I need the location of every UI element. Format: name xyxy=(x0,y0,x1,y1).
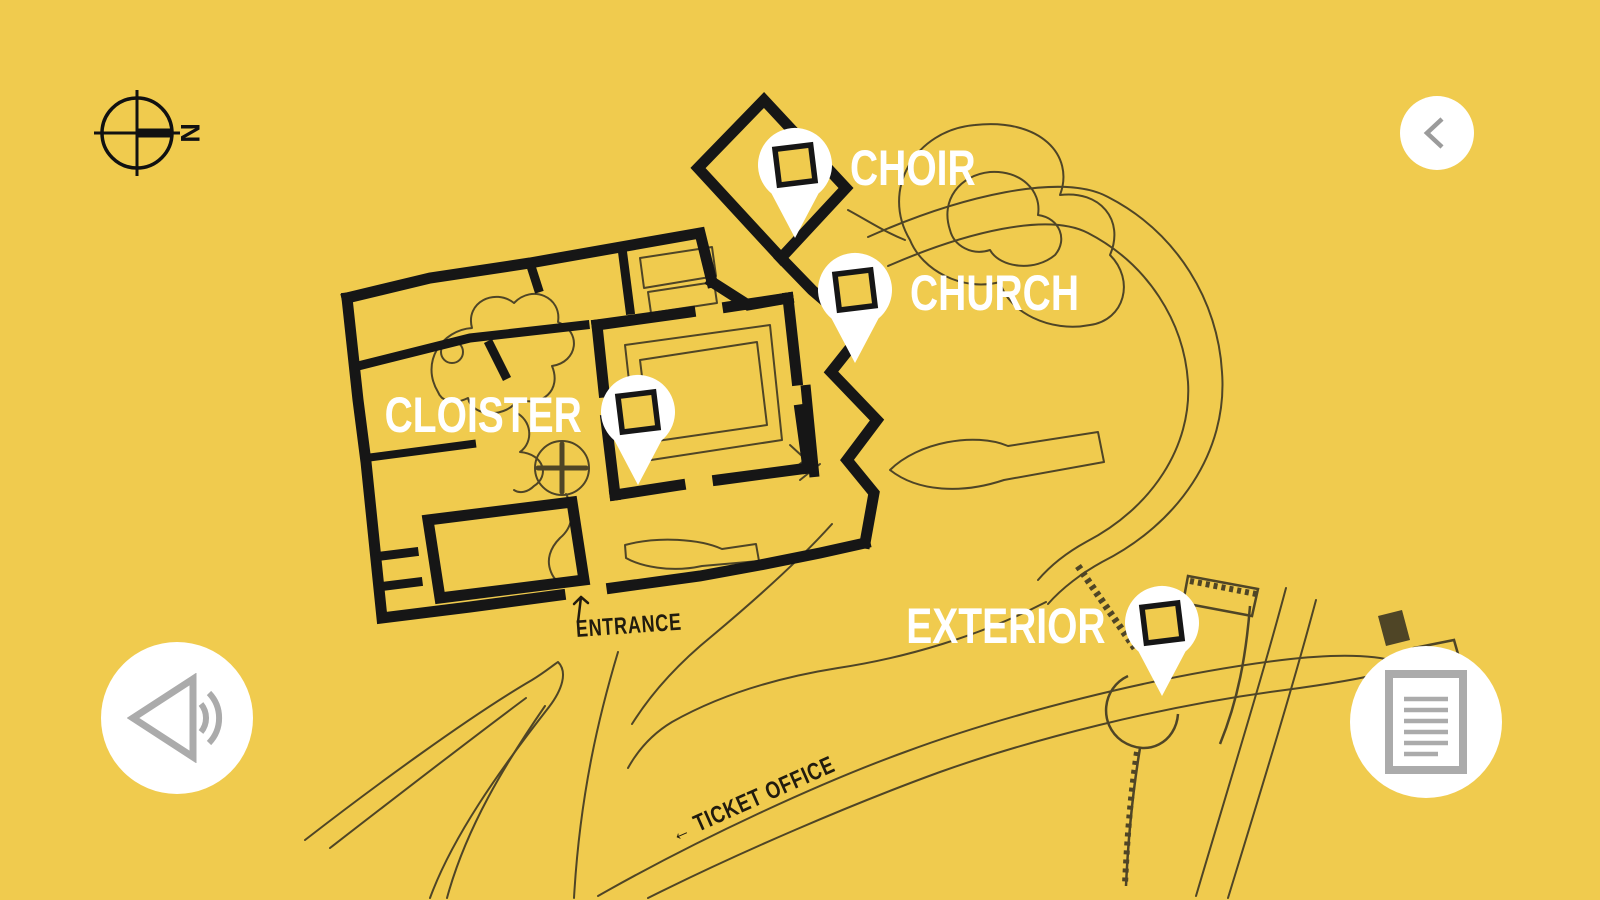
map-pin-cloister[interactable]: CLOISTER xyxy=(596,370,680,502)
chevron-left-icon xyxy=(1417,113,1457,153)
speaker-icon xyxy=(127,673,227,763)
notes-button[interactable] xyxy=(1350,646,1502,798)
map-pin-choir[interactable]: CHOIR xyxy=(753,123,837,255)
compass-north-label: N xyxy=(175,123,205,143)
document-icon xyxy=(1384,669,1468,775)
compass-icon: N xyxy=(86,80,208,186)
map-pin-exterior[interactable]: EXTERIOR xyxy=(1120,581,1204,713)
pin-marker-icon xyxy=(1120,581,1204,713)
pin-label-cloister: CLOISTER xyxy=(385,390,582,440)
pin-label-choir: CHOIR xyxy=(850,143,976,193)
back-button[interactable] xyxy=(1400,96,1474,170)
map-pin-church[interactable]: CHURCH xyxy=(813,248,897,380)
audio-guide-map-screen: N CHOIR CHURCH CLOISTER EXTERIOR xyxy=(0,0,1600,900)
pin-label-exterior: EXTERIOR xyxy=(907,601,1106,651)
pin-label-church: CHURCH xyxy=(910,268,1079,318)
pin-marker-icon xyxy=(813,248,897,380)
pin-marker-icon xyxy=(753,123,837,255)
pin-marker-icon xyxy=(596,370,680,502)
audio-button[interactable] xyxy=(101,642,253,794)
